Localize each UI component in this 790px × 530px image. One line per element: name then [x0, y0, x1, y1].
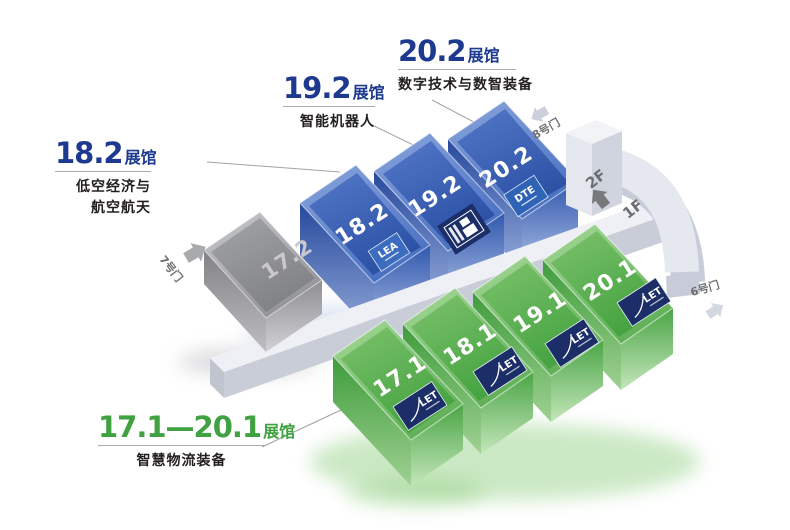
callout-18-2-number: 18.2 — [55, 136, 123, 170]
callout-hall-19-2: 19.2展馆 智能机器人 — [283, 71, 375, 131]
callout-19-2-title: 19.2展馆 — [283, 71, 375, 105]
door-8: 8号门 — [527, 103, 562, 142]
callout-19-2-number: 19.2 — [283, 71, 351, 105]
callout-hall-18-2: 18.2展馆 低空经济与 航空航天 — [55, 136, 151, 217]
callout-halls-17-1-to-20-1: 17.1—20.1展馆 智慧物流装备 — [98, 410, 265, 470]
callout-20-2-hallword: 展馆 — [468, 46, 500, 65]
callout-20-2-number: 20.2 — [398, 34, 466, 68]
exhibition-hall-map: 20.2 DTE 19.2 18.2 LEA — [0, 0, 790, 530]
callout-20-2-subtitle: 数字技术与数智装备 — [398, 74, 516, 94]
callout-17-20-1-title: 17.1—20.1展馆 — [98, 410, 265, 444]
door-6: 6号门 — [689, 277, 728, 322]
callout-17-20-1-number: 17.1—20.1 — [98, 410, 261, 444]
callout-17-20-1-hallword: 展馆 — [263, 422, 295, 441]
callout-20-2-title: 20.2展馆 — [398, 34, 516, 68]
callout-20-2-rule — [398, 69, 516, 70]
door-7: 7号门 — [157, 238, 211, 285]
door-7-label: 7号门 — [157, 253, 186, 285]
callout-18-2-title: 18.2展馆 — [55, 136, 151, 170]
callout-18-2-subtitle-line2: 航空航天 — [55, 197, 151, 217]
callout-19-2-hallword: 展馆 — [353, 83, 385, 102]
door-6-arrow-icon — [703, 298, 727, 322]
callout-18-2-subtitle-line1: 低空经济与 — [55, 176, 151, 196]
callout-17-20-1-rule — [98, 445, 265, 446]
callout-17-20-1-subtitle: 智慧物流装备 — [98, 450, 265, 470]
callout-19-2-subtitle: 智能机器人 — [283, 111, 375, 131]
line-18-2 — [207, 162, 340, 172]
callout-18-2-hallword: 展馆 — [125, 148, 157, 167]
callout-19-2-rule — [283, 106, 375, 107]
callout-18-2-rule — [55, 171, 151, 172]
callout-hall-20-2: 20.2展馆 数字技术与数智装备 — [398, 34, 516, 94]
